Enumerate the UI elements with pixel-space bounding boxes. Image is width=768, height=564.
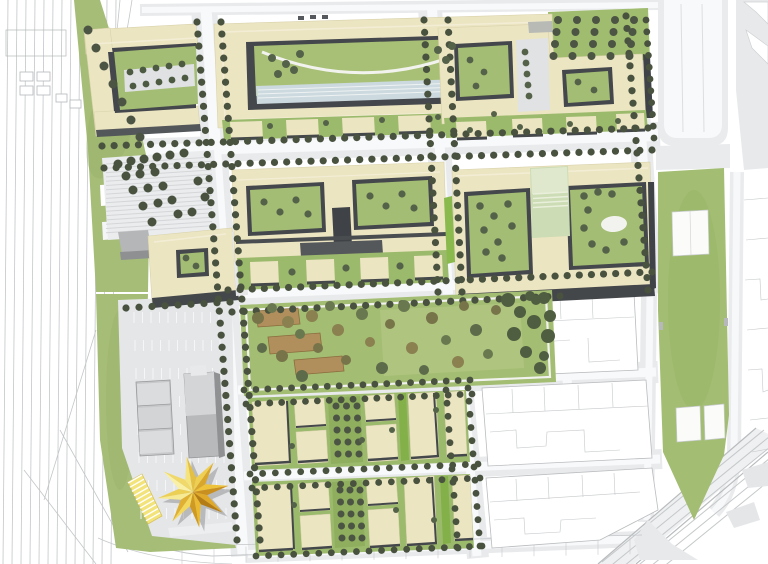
courtyard-tree <box>342 264 349 271</box>
tree <box>303 550 310 557</box>
tree <box>643 274 650 281</box>
tree <box>515 274 522 281</box>
tree <box>242 344 249 351</box>
tree <box>651 135 658 142</box>
tree <box>644 40 651 47</box>
tree <box>335 467 342 474</box>
tree <box>467 377 474 384</box>
tree <box>187 301 194 308</box>
tree <box>419 379 426 386</box>
tree <box>622 12 629 19</box>
orchard-tree <box>554 16 562 24</box>
tree <box>200 300 207 307</box>
tree <box>206 187 213 194</box>
park-tree <box>365 337 375 347</box>
tree <box>638 212 645 219</box>
orchard-tree <box>333 403 340 410</box>
tree <box>454 531 461 538</box>
tree <box>350 480 357 487</box>
tree <box>374 301 381 308</box>
tree <box>236 271 243 278</box>
tree <box>310 468 317 475</box>
tree <box>649 111 656 118</box>
tree <box>576 271 583 278</box>
tree <box>214 283 221 290</box>
tree <box>264 386 271 393</box>
tree <box>433 264 440 271</box>
park-tree-dense <box>527 315 541 329</box>
tree <box>272 469 279 476</box>
tree <box>399 464 406 471</box>
tree <box>289 305 296 312</box>
tree <box>425 115 432 122</box>
tree <box>380 155 387 162</box>
tree <box>431 378 438 385</box>
tree <box>476 529 483 536</box>
tree <box>630 112 637 119</box>
park-tree <box>257 343 267 353</box>
orchard-tree <box>348 511 355 518</box>
tree <box>353 134 360 141</box>
courtyard-tree <box>494 238 502 246</box>
orchard-tree <box>358 511 365 518</box>
tree <box>403 546 410 553</box>
tree <box>608 126 615 133</box>
park-tree <box>441 335 451 345</box>
rail-shed <box>20 72 33 81</box>
tree <box>313 304 320 311</box>
tree <box>469 437 476 444</box>
tree <box>341 134 348 141</box>
tree <box>329 135 336 142</box>
tree <box>261 285 268 292</box>
tree <box>648 268 655 275</box>
orchard-tree <box>347 499 354 506</box>
plaza-tree <box>122 172 131 181</box>
courtyard-tree <box>183 255 190 262</box>
shed-roof-face <box>184 372 216 416</box>
tree <box>447 298 454 305</box>
tree <box>397 394 404 401</box>
inner-plaza <box>516 38 550 112</box>
tree <box>220 55 227 62</box>
tree <box>421 393 428 400</box>
courtyard-tree <box>580 224 588 232</box>
tree <box>628 87 635 94</box>
tree <box>466 543 473 550</box>
tree <box>253 553 260 560</box>
tree <box>551 150 558 157</box>
orchard-tree <box>339 535 346 542</box>
tree <box>499 129 506 136</box>
courtyard-tree <box>292 196 299 203</box>
garden-tree <box>491 111 497 117</box>
tree <box>135 141 142 148</box>
park-tree <box>332 324 344 336</box>
tree <box>596 126 603 133</box>
tree <box>429 177 436 184</box>
tree <box>650 123 657 130</box>
tree <box>362 395 369 402</box>
orchard-tree <box>591 28 599 36</box>
tree <box>328 549 335 556</box>
shed-roof-face <box>137 382 170 406</box>
tree <box>219 42 226 49</box>
tree <box>465 385 472 392</box>
tree <box>218 332 225 339</box>
strip-tree <box>109 80 118 89</box>
tree <box>442 277 449 284</box>
park-tree <box>276 350 288 362</box>
park-tree-dense <box>534 362 546 374</box>
tree <box>195 139 202 146</box>
tree <box>453 518 460 525</box>
tree <box>643 28 650 35</box>
tree <box>244 138 251 145</box>
courtyard-tree <box>620 238 628 246</box>
tree <box>302 398 309 405</box>
courtyard-green <box>356 180 430 226</box>
roof-detail <box>322 15 328 19</box>
tree <box>205 175 212 182</box>
courtyard-tree <box>276 208 283 215</box>
tree <box>373 395 380 402</box>
park-tree <box>470 324 482 336</box>
tree <box>600 148 607 155</box>
orchard-tree <box>344 427 351 434</box>
tree <box>452 505 459 512</box>
park-tree <box>313 343 323 353</box>
masterplan <box>0 0 768 564</box>
tree <box>422 41 429 48</box>
tree <box>220 368 227 375</box>
strip-tree <box>136 133 145 142</box>
orchard-tree <box>348 523 355 530</box>
park-tree <box>296 370 308 382</box>
tree <box>366 548 373 555</box>
tree <box>368 156 375 163</box>
tree <box>551 273 558 280</box>
courtyard-tree <box>260 198 267 205</box>
south-wing <box>250 261 279 286</box>
tree <box>377 133 384 140</box>
tree <box>193 18 200 25</box>
tree <box>226 298 233 305</box>
tree <box>100 164 107 171</box>
tree <box>230 488 237 495</box>
sports-field <box>704 404 725 440</box>
park-tree <box>306 310 318 322</box>
tree <box>299 482 306 489</box>
tree <box>333 282 340 289</box>
garden-tree <box>517 124 523 130</box>
tree <box>535 128 542 135</box>
tree <box>423 66 430 73</box>
garden-tree <box>567 121 573 127</box>
tree <box>183 140 190 147</box>
plaza-tree <box>153 153 162 162</box>
tree <box>338 303 345 310</box>
tree <box>572 127 579 134</box>
courtyard-tree <box>127 69 134 76</box>
tree <box>312 383 319 390</box>
garden-tree <box>267 123 273 129</box>
tree <box>450 479 457 486</box>
tree <box>467 411 474 418</box>
courtyard-tree <box>182 75 189 82</box>
park-meadow <box>380 303 524 376</box>
tree <box>539 273 546 280</box>
courtyard-tree <box>498 254 506 262</box>
tree <box>449 103 456 110</box>
tree <box>217 320 224 327</box>
tree <box>647 87 654 94</box>
tree <box>547 128 554 135</box>
tree <box>174 301 181 308</box>
tree <box>629 100 636 107</box>
tree <box>245 380 252 387</box>
park-tree-dense <box>507 327 521 341</box>
orchard-tree <box>354 403 361 410</box>
tree <box>252 476 259 483</box>
tree <box>449 466 456 473</box>
tree <box>227 452 234 459</box>
courtyard-tree <box>143 81 150 88</box>
courtyard-tree <box>304 210 311 217</box>
tree <box>346 281 353 288</box>
tree <box>315 550 322 557</box>
tree <box>254 400 261 407</box>
plaza-tree <box>151 168 160 177</box>
tree <box>255 524 262 531</box>
tree <box>464 475 471 482</box>
tree <box>226 440 233 447</box>
tree <box>235 247 242 254</box>
tree <box>301 305 308 312</box>
rail-shed <box>20 86 33 95</box>
tree <box>253 488 260 495</box>
rail-shed <box>56 94 67 102</box>
orchard-tree <box>630 16 638 24</box>
tree <box>472 477 479 484</box>
tree <box>224 103 231 110</box>
orchard-tree <box>333 415 340 422</box>
park-tree <box>282 316 294 328</box>
courtyard-tree <box>179 61 186 68</box>
tree <box>427 152 434 159</box>
courtyard-tree <box>193 263 200 270</box>
tree <box>451 492 458 499</box>
tree <box>212 259 219 266</box>
tree <box>447 439 454 446</box>
park-tree-dense <box>544 310 556 322</box>
courtyard-tree <box>410 204 417 211</box>
tree <box>271 159 278 166</box>
garden-tree <box>431 517 437 523</box>
tree <box>300 384 307 391</box>
orchard-tree <box>338 523 345 530</box>
tree <box>564 272 571 279</box>
tree <box>195 42 202 49</box>
garden-tree <box>389 427 395 433</box>
tree <box>237 283 244 290</box>
tree <box>219 344 226 351</box>
tree <box>231 500 238 507</box>
tree <box>382 280 389 287</box>
tree <box>287 483 294 490</box>
tree <box>584 126 591 133</box>
park-tree-dense <box>514 306 526 318</box>
tree <box>386 301 393 308</box>
tree <box>466 398 473 405</box>
courtyard-tree <box>481 69 488 76</box>
tree <box>454 202 461 209</box>
tree <box>431 227 438 234</box>
garden-tree <box>467 127 473 133</box>
tree <box>451 152 458 159</box>
plaza-tree <box>180 149 189 158</box>
tree <box>434 276 441 283</box>
townhouse <box>368 508 400 548</box>
tree <box>424 91 431 98</box>
tree <box>420 16 427 23</box>
block-f <box>444 162 656 306</box>
tree <box>422 53 429 60</box>
garden-tree <box>289 443 295 449</box>
courtyard-tree <box>153 65 160 72</box>
tree <box>312 482 319 489</box>
tree <box>448 452 455 459</box>
tree <box>123 142 130 149</box>
orchard-tree <box>569 52 577 60</box>
tree <box>468 424 475 431</box>
tree <box>350 302 357 309</box>
garden-tree <box>615 118 621 124</box>
courtyard-tree <box>594 188 602 196</box>
tree <box>197 67 204 74</box>
tree <box>511 129 518 136</box>
tree <box>490 152 497 159</box>
tree <box>243 356 250 363</box>
tree <box>209 223 216 230</box>
tree <box>340 549 347 556</box>
tree <box>448 78 455 85</box>
park-tree-dense <box>520 346 532 358</box>
plaza-tree <box>188 208 197 217</box>
tree <box>455 545 462 552</box>
south-wing <box>306 259 335 284</box>
tree <box>477 543 484 550</box>
tree <box>502 151 509 158</box>
tree <box>407 379 414 386</box>
courtyard-green <box>180 252 205 274</box>
tree <box>514 151 521 158</box>
tree <box>137 163 144 170</box>
tree <box>441 153 448 160</box>
tree <box>620 125 627 132</box>
tree <box>645 52 652 59</box>
orchard-tree <box>357 487 364 494</box>
tree <box>457 264 464 271</box>
garden-tree <box>433 407 439 413</box>
tree <box>639 224 646 231</box>
park-tree <box>267 303 277 313</box>
courtyard-tree <box>575 79 582 86</box>
tree <box>323 467 330 474</box>
plaza-tree <box>140 155 149 164</box>
tree <box>248 428 255 435</box>
orchard-tree <box>573 16 581 24</box>
tree <box>647 76 654 83</box>
tree <box>283 158 290 165</box>
tree <box>443 387 450 394</box>
courtyard-tree <box>467 57 474 64</box>
tree <box>445 413 452 420</box>
courtyard-tree <box>591 87 598 94</box>
tree <box>200 103 207 110</box>
tree <box>241 332 248 339</box>
park-tree <box>419 365 429 375</box>
tree <box>122 304 129 311</box>
park-tree <box>295 329 305 339</box>
tree <box>635 174 642 181</box>
tree <box>278 551 285 558</box>
courtyard-tree <box>169 77 176 84</box>
tree <box>406 279 413 286</box>
tree <box>451 140 458 147</box>
courtyard-tree <box>290 66 298 74</box>
tree <box>161 162 168 169</box>
tree <box>624 147 631 154</box>
tree <box>491 275 498 282</box>
park-tree-dense <box>539 351 549 361</box>
garden-tree <box>393 507 399 513</box>
tree <box>437 462 444 469</box>
tree <box>455 227 462 234</box>
tree <box>457 391 464 398</box>
tree <box>224 286 231 293</box>
tree <box>171 140 178 147</box>
tree <box>462 461 469 468</box>
tree <box>229 476 236 483</box>
tree <box>199 91 206 98</box>
park-tree <box>452 356 464 368</box>
park-tree <box>483 349 493 359</box>
tree <box>201 115 208 122</box>
tree <box>111 142 118 149</box>
tree <box>626 62 633 69</box>
tree <box>467 276 474 283</box>
tree <box>309 283 316 290</box>
tree <box>251 464 258 471</box>
tree <box>475 516 482 523</box>
park-tree-dense <box>525 291 535 301</box>
tree <box>390 133 397 140</box>
tree <box>295 158 302 165</box>
tree <box>646 64 653 71</box>
park-entry <box>659 322 663 330</box>
orchard-tree <box>357 499 364 506</box>
park-tree <box>459 301 469 311</box>
center-gap <box>332 207 352 247</box>
courtyard-tree <box>588 240 596 248</box>
tree <box>350 396 357 403</box>
park-tree <box>426 312 438 324</box>
existing-block <box>482 380 652 466</box>
tree <box>424 463 431 470</box>
slab-shadow <box>455 539 473 540</box>
courtyard-tree <box>434 46 442 54</box>
